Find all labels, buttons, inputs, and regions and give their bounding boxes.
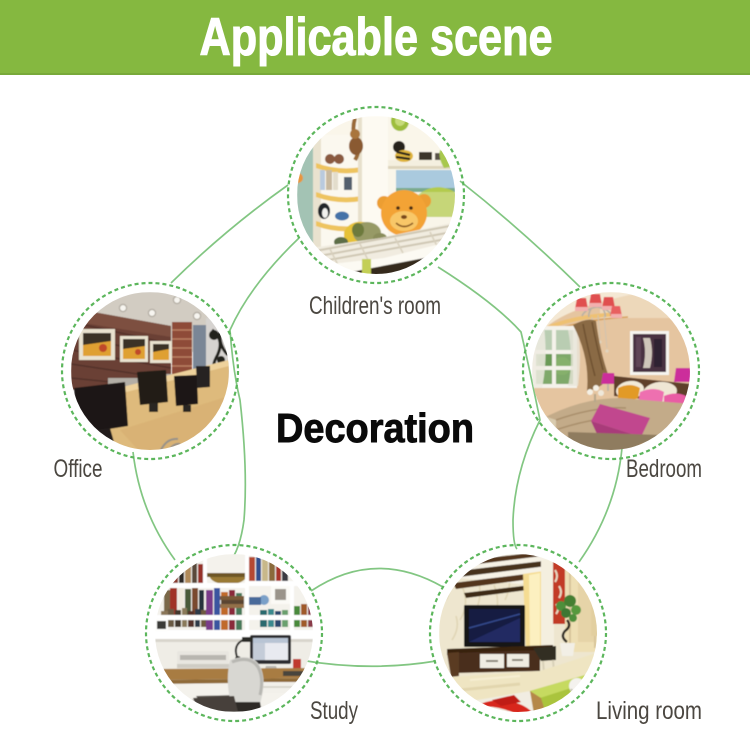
svg-text:Decoration: Decoration — [276, 405, 474, 451]
svg-text:Living room: Living room — [596, 697, 702, 725]
svg-text:Applicable scene: Applicable scene — [200, 8, 553, 67]
svg-text:Bedroom: Bedroom — [626, 455, 702, 483]
svg-text:Study: Study — [310, 697, 358, 725]
svg-text:Children's room: Children's room — [309, 292, 441, 320]
svg-text:Office: Office — [54, 455, 103, 483]
